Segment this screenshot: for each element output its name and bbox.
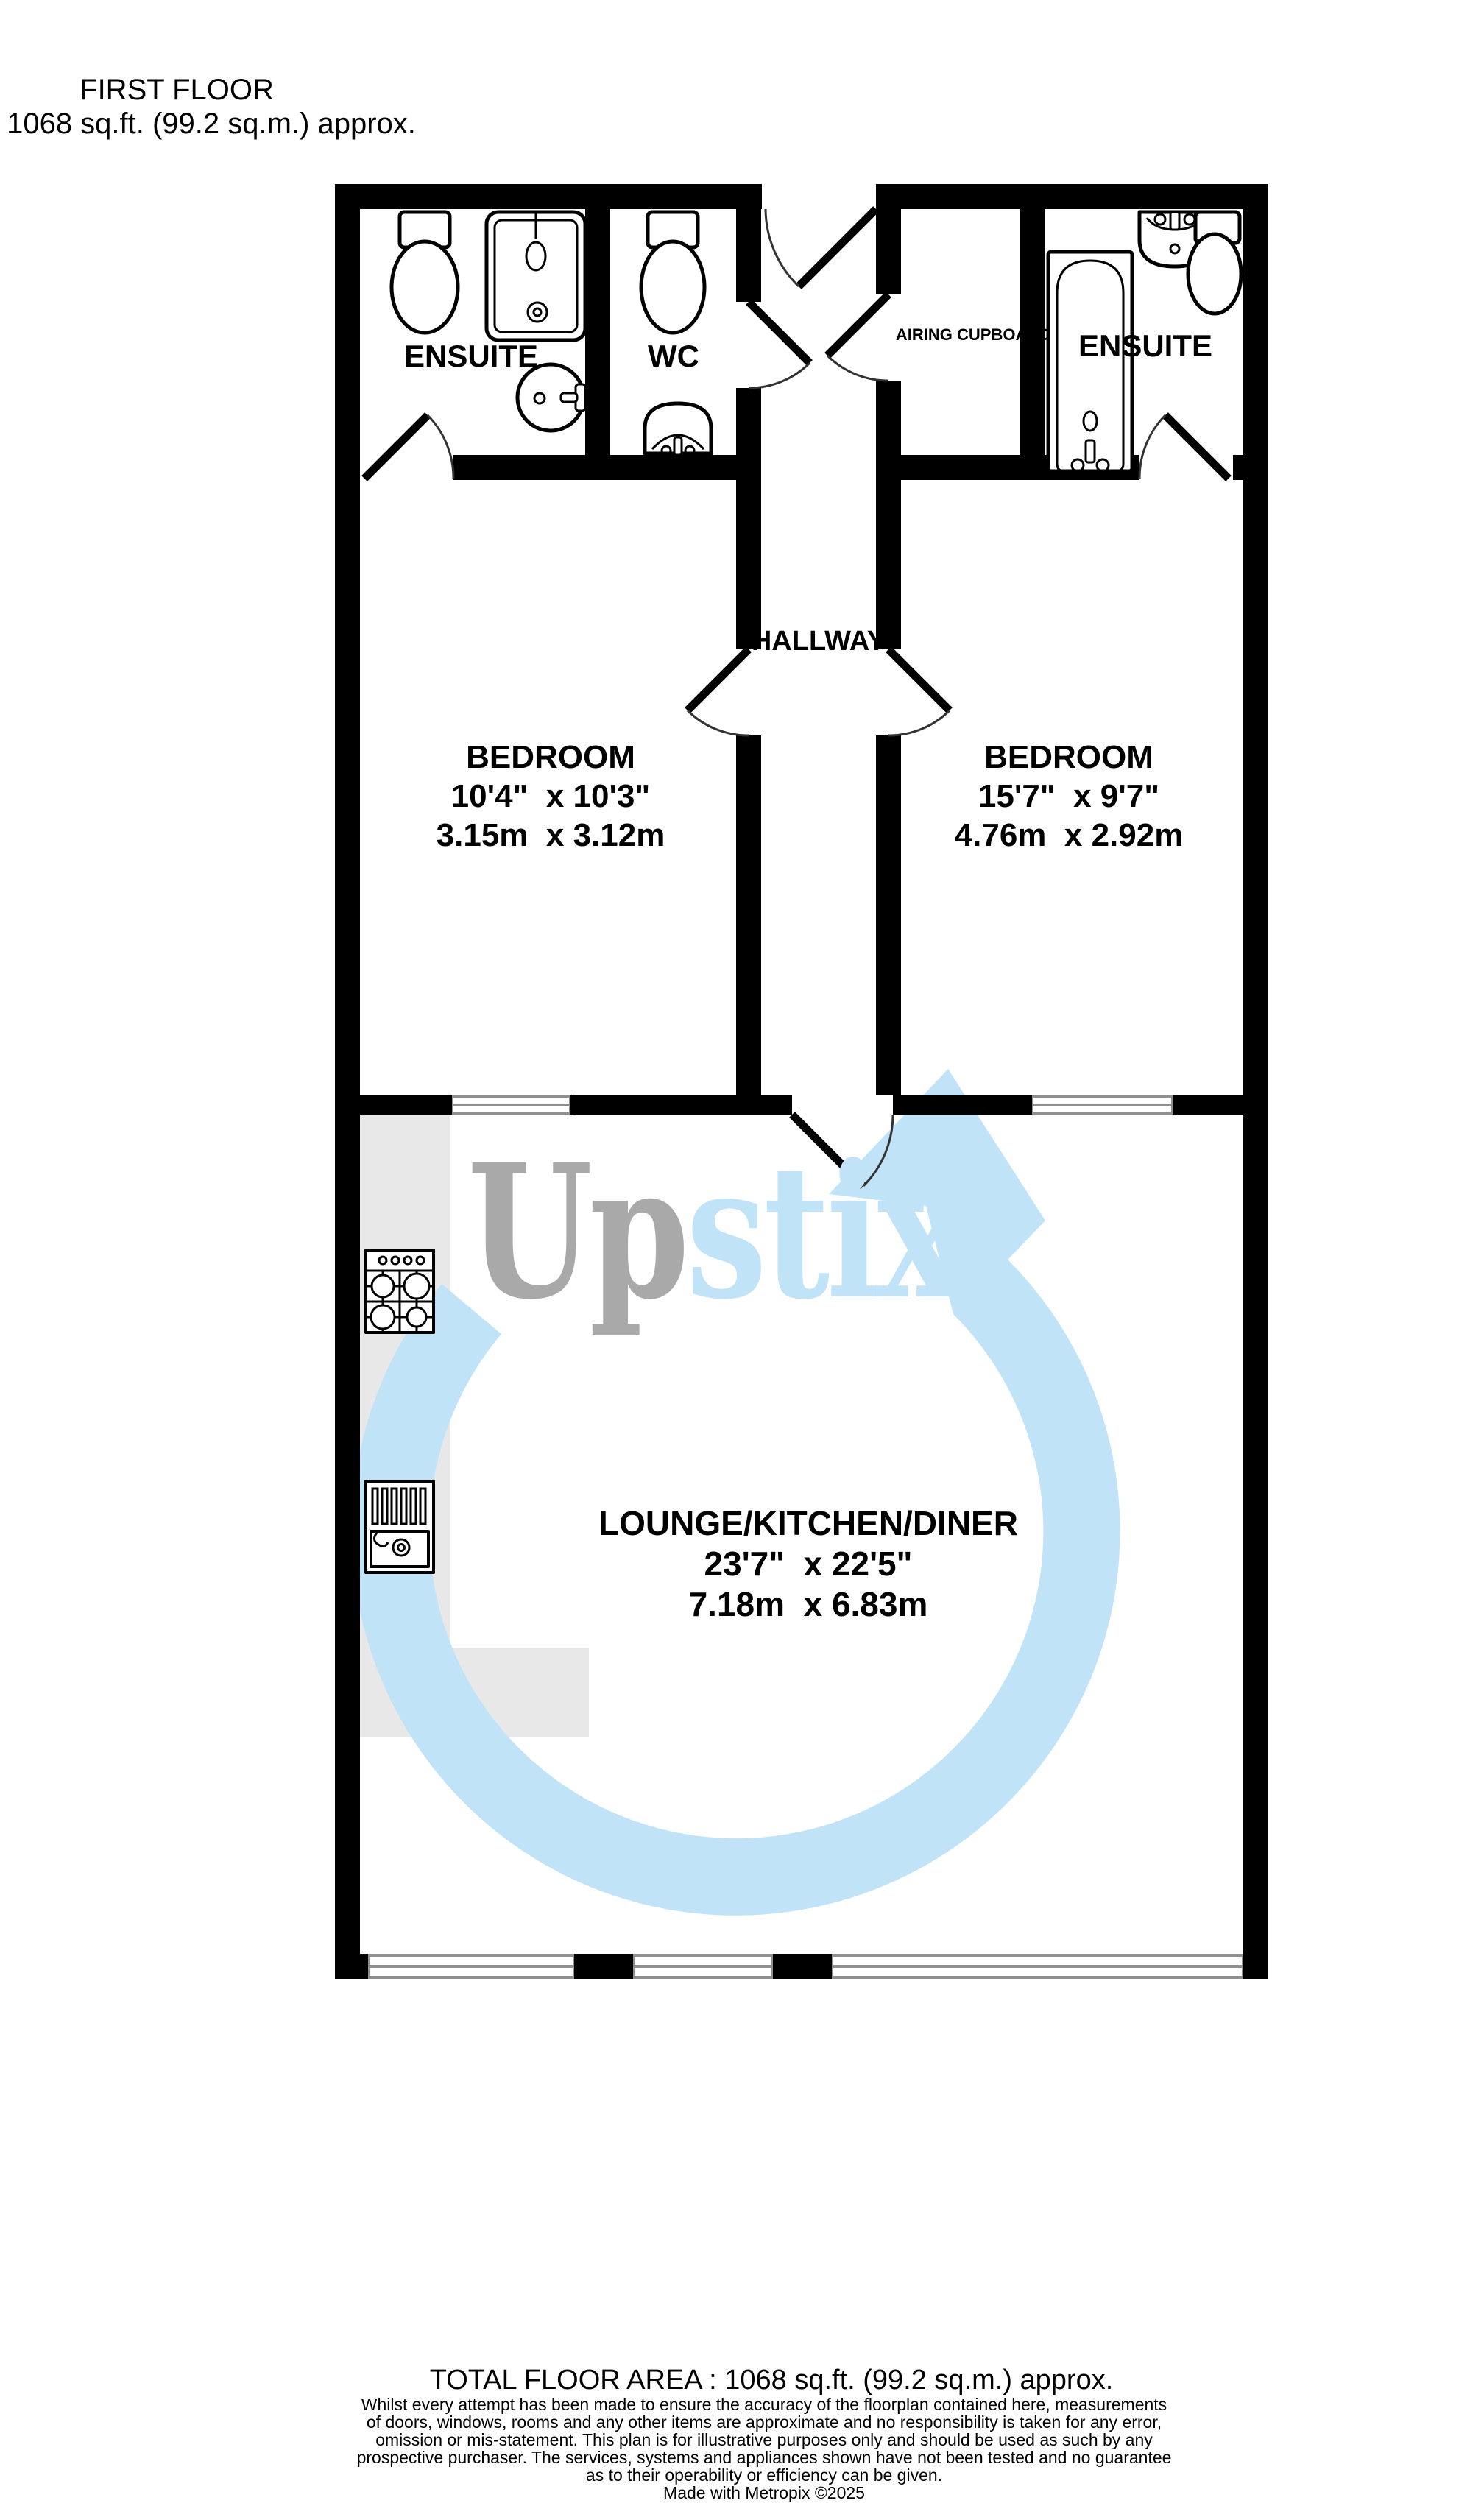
- room-label-bedroom-right: BEDROOM 15'7" x 9'7" 4.76m x 2.92m: [955, 738, 1184, 855]
- room-label-ensuite-left: ENSUITE: [404, 339, 538, 374]
- room-label-wc: WC: [648, 339, 699, 374]
- bedroom-right-size-imperial: 15'7" x 9'7": [955, 777, 1184, 816]
- kitchen-sink-icon: [366, 1481, 434, 1573]
- disclaimer-line: Whilst every attempt has been made to en…: [357, 2396, 1172, 2413]
- upstix-watermark: Upstix: [467, 1140, 960, 1324]
- metropix-credit: Made with Metropix ©2025: [357, 2484, 1172, 2502]
- bedroom-left-size-metric: 3.15m x 3.12m: [437, 816, 665, 855]
- disclaimer-line: of doors, windows, rooms and any other i…: [357, 2413, 1172, 2431]
- bedroom-right-name: BEDROOM: [955, 738, 1184, 777]
- lounge-size-imperial: 23'7" x 22'5": [598, 1544, 1018, 1584]
- disclaimer-line: prospective purchaser. The services, sys…: [357, 2449, 1172, 2466]
- disclaimer: Whilst every attempt has been made to en…: [357, 2396, 1172, 2502]
- room-label-lounge: LOUNGE/KITCHEN/DINER 23'7" x 22'5" 7.18m…: [598, 1503, 1018, 1625]
- room-label-ensuite-right: ENSUITE: [1078, 328, 1212, 364]
- toilet-icon: [392, 212, 458, 333]
- watermark-text-blue: stix: [686, 1123, 959, 1340]
- toilet-icon: [1188, 212, 1241, 314]
- room-label-hallway: HALLWAY: [752, 626, 886, 657]
- stove-icon: [366, 1250, 434, 1333]
- floorplan-page: FIRST FLOOR 1068 sq.ft. (99.2 sq.m.) app…: [0, 0, 1484, 2506]
- sink-icon: [517, 364, 585, 431]
- disclaimer-line: as to their operability or efficiency ca…: [357, 2466, 1172, 2484]
- lounge-name: LOUNGE/KITCHEN/DINER: [598, 1503, 1018, 1544]
- bedroom-left-size-imperial: 10'4" x 10'3": [437, 777, 665, 816]
- sink-icon: [645, 403, 711, 455]
- toilet-icon: [641, 212, 704, 333]
- disclaimer-line: omission or mis-statement. This plan is …: [357, 2431, 1172, 2449]
- shower-icon: [487, 212, 585, 340]
- lounge-size-metric: 7.18m x 6.83m: [598, 1584, 1018, 1625]
- total-floor-area: TOTAL FLOOR AREA : 1068 sq.ft. (99.2 sq.…: [430, 2365, 1114, 2396]
- room-label-airing-cupboard: AIRING CUPBOARD: [896, 325, 1050, 345]
- watermark-text-gray: Up: [467, 1123, 686, 1340]
- bedroom-right-size-metric: 4.76m x 2.92m: [955, 816, 1184, 855]
- room-label-bedroom-left: BEDROOM 10'4" x 10'3" 3.15m x 3.12m: [437, 738, 665, 855]
- bedroom-left-name: BEDROOM: [437, 738, 665, 777]
